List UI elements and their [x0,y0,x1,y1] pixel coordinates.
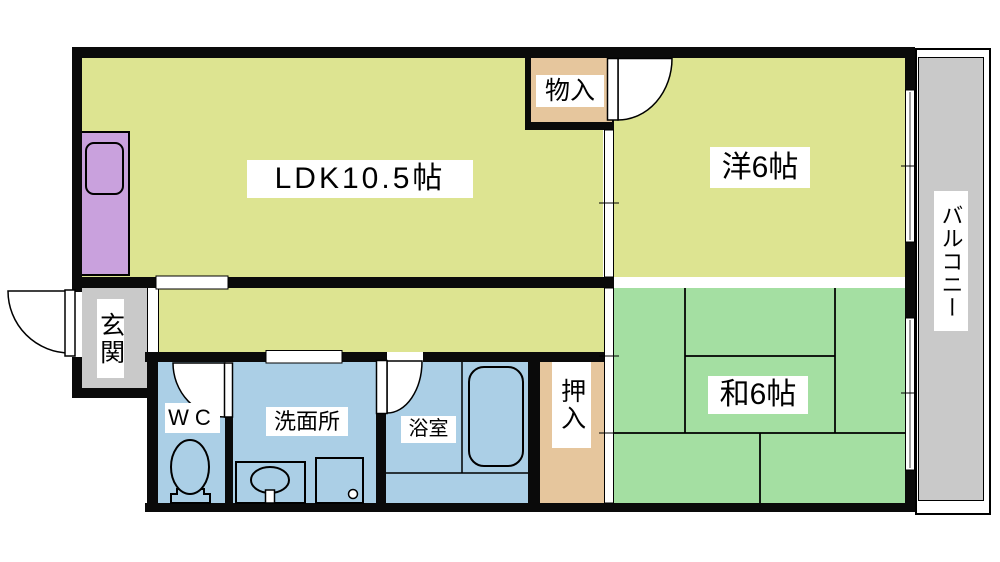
label-closet: 押入 [552,362,591,448]
wall [225,417,233,503]
wall [342,352,387,362]
label-entrance: 玄関 [97,299,124,378]
label-wc: WC [165,403,220,433]
sliding-door-japanese [605,288,614,503]
wall [228,277,614,288]
window-western [906,90,915,242]
label-washroom: 洗面所 [266,407,348,436]
kitchen-counter [80,131,130,276]
wall [423,352,614,362]
wall [905,47,915,90]
wall [528,352,540,503]
room-hallway [157,288,604,352]
label-japanese: 和6帖 [708,376,808,414]
wall [72,47,82,292]
wall [376,413,386,503]
label-western: 洋6帖 [710,147,810,188]
wall [72,47,915,58]
wall [75,277,156,288]
entrance-step [147,288,159,352]
wc-door-leaf [225,363,233,417]
label-bathroom: 浴室 [401,416,456,443]
label-storage: 物入 [536,75,604,107]
label-ldk: LDK10.5帖 [247,160,473,198]
wall [145,352,266,362]
wall [905,242,915,318]
front-door-leaf [65,290,75,356]
window-japanese [906,318,915,470]
wall [147,352,158,512]
label-balcony: バルコニー [934,191,968,331]
front-door-arc [8,291,70,353]
wall [72,388,158,398]
wall [145,503,915,512]
floor-plan: LDK10.5帖 洋6帖 和6帖 物入 玄関 WC 洗面所 浴室 押入 バルコニ… [0,0,1000,562]
